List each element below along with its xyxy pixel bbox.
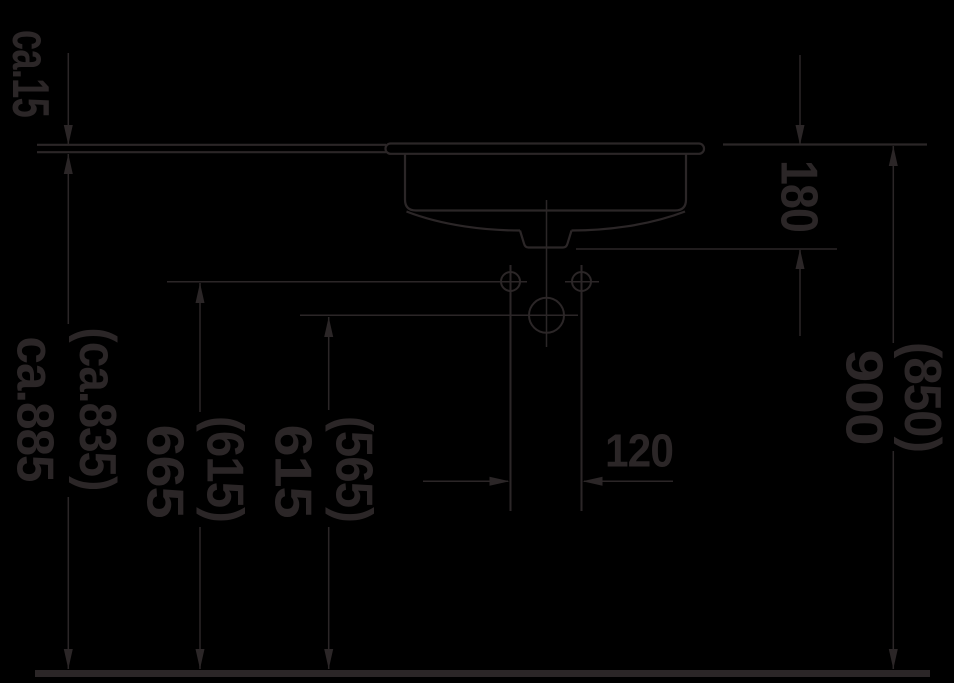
technical-drawing: ca.15 ca.885 (ca.835) 665 (615) 615 (565…: [0, 0, 954, 683]
arrow-up-upper-holes: [196, 283, 205, 303]
arrow-left-pipe-width: [583, 477, 603, 486]
arrow-down-counter-top: [889, 649, 898, 669]
arrow-up-counter-top: [889, 146, 898, 166]
arrow-down-under-counter: [64, 649, 73, 669]
basin-walls: [405, 154, 686, 211]
label-pipe-width: 120: [605, 425, 673, 477]
label-drain-center-height-alt: (565): [324, 416, 382, 522]
label-counter-top-height-alt: (850): [893, 342, 951, 452]
arrow-down-basin-depth: [796, 125, 805, 145]
arrow-up-under-counter: [64, 154, 73, 174]
arrow-up-drain-center: [324, 317, 333, 337]
label-basin-depth: 180: [769, 160, 827, 232]
basin-bowl-curve-left: [407, 212, 521, 231]
label-under-counter-height-alt: (ca.835): [68, 328, 126, 491]
technical-drawing-canvas: ca.15 ca.885 (ca.835) 665 (615) 615 (565…: [0, 0, 954, 683]
arrow-down-countertop-thickness: [64, 125, 73, 145]
basin-bowl-curve-right: [572, 212, 686, 231]
label-upper-holes-height: 665: [135, 425, 193, 518]
label-upper-holes-height-alt: (615): [195, 416, 253, 522]
label-under-counter-height: ca.885: [5, 337, 63, 482]
arrow-down-drain-center: [324, 649, 333, 669]
basin-rim: [386, 144, 705, 154]
arrow-up-basin-depth: [796, 249, 805, 269]
arrow-right-pipe-width: [490, 477, 510, 486]
label-countertop-thickness: ca.15: [1, 30, 59, 117]
label-drain-center-height: 615: [263, 425, 321, 518]
label-counter-top-height: 900: [834, 350, 892, 445]
arrow-down-upper-holes: [196, 649, 205, 669]
